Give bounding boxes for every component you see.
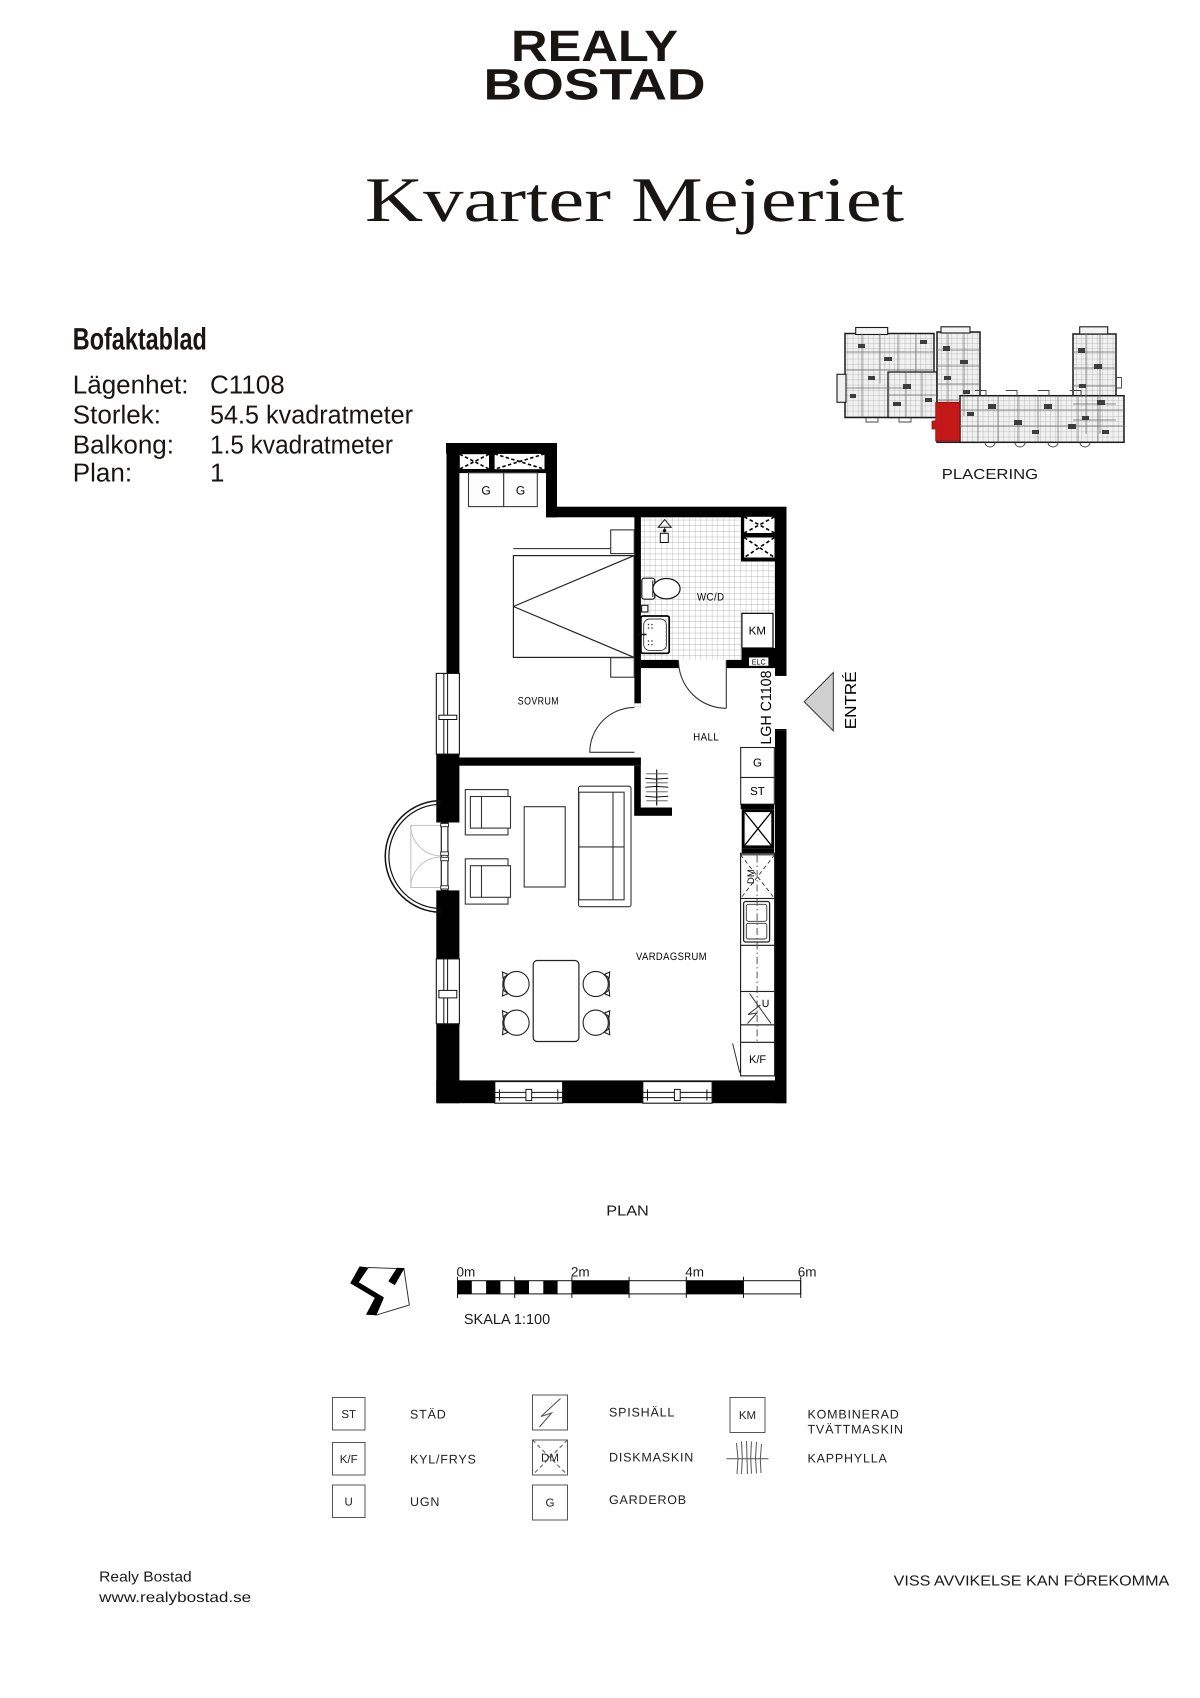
svg-text:G: G — [546, 1498, 555, 1510]
svg-text:www.realybostad.se: www.realybostad.se — [98, 1590, 251, 1606]
svg-text:ENTRÉ: ENTRÉ — [842, 671, 860, 729]
svg-text:DM: DM — [541, 1453, 559, 1465]
svg-text:KM: KM — [739, 1410, 756, 1422]
svg-text:HALL: HALL — [693, 731, 719, 743]
svg-text:ELC: ELC — [752, 657, 767, 666]
svg-text:Plan:: Plan: — [73, 458, 132, 488]
svg-text:DISKMASKIN: DISKMASKIN — [609, 1451, 694, 1465]
svg-text:2m: 2m — [571, 1265, 590, 1280]
svg-text:VISS AVVIKELSE KAN FÖREKOMMA: VISS AVVIKELSE KAN FÖREKOMMA — [894, 1573, 1170, 1590]
svg-text:K/F: K/F — [749, 1054, 766, 1066]
svg-text:U: U — [345, 1496, 353, 1508]
svg-text:Kvarter Mejeriet: Kvarter Mejeriet — [365, 164, 904, 235]
svg-text:1: 1 — [210, 458, 224, 488]
svg-text:Realy Bostad: Realy Bostad — [99, 1570, 192, 1586]
svg-text:ST: ST — [750, 786, 765, 798]
svg-text:UGN: UGN — [410, 1495, 440, 1509]
svg-text:LGH C1108: LGH C1108 — [759, 671, 775, 745]
svg-text:STÄD: STÄD — [410, 1408, 447, 1422]
svg-text:K/F: K/F — [340, 1454, 358, 1466]
svg-text:PLAN: PLAN — [606, 1204, 649, 1220]
svg-text:SOVRUM: SOVRUM — [518, 696, 559, 708]
svg-text:KAPPHYLLA: KAPPHYLLA — [808, 1452, 888, 1466]
svg-text:G: G — [516, 484, 525, 498]
svg-text:SPISHÄLL: SPISHÄLL — [609, 1406, 675, 1420]
svg-text:Balkong:: Balkong: — [73, 429, 174, 459]
svg-text:Lägenhet:: Lägenhet: — [73, 369, 189, 399]
svg-text:Storlek:: Storlek: — [73, 399, 161, 429]
svg-text:U: U — [762, 998, 770, 1010]
svg-text:KM: KM — [749, 626, 766, 638]
svg-text:DM: DM — [746, 869, 757, 884]
svg-text:PLACERING: PLACERING — [942, 467, 1038, 483]
svg-text:SKALA 1:100: SKALA 1:100 — [464, 1312, 550, 1328]
svg-text:BOSTAD: BOSTAD — [484, 60, 706, 109]
svg-text:TVÄTTMASKIN: TVÄTTMASKIN — [808, 1423, 904, 1437]
svg-text:ST: ST — [341, 1409, 356, 1421]
svg-text:KYL/FRYS: KYL/FRYS — [410, 1453, 477, 1467]
svg-text:0m: 0m — [457, 1265, 476, 1280]
svg-text:4m: 4m — [685, 1265, 704, 1280]
svg-text:WC/D: WC/D — [697, 592, 725, 604]
svg-text:1.5 kvadratmeter: 1.5 kvadratmeter — [210, 429, 393, 459]
svg-text:GARDEROB: GARDEROB — [609, 1493, 687, 1507]
svg-text:Bofaktablad: Bofaktablad — [73, 322, 207, 357]
svg-text:KOMBINERAD: KOMBINERAD — [808, 1408, 900, 1422]
svg-text:G: G — [481, 484, 490, 498]
svg-text:VARDAGSRUM: VARDAGSRUM — [636, 951, 707, 963]
svg-text:G: G — [753, 758, 762, 770]
svg-text:C1108: C1108 — [210, 369, 285, 399]
svg-text:54.5 kvadratmeter: 54.5 kvadratmeter — [210, 399, 413, 429]
